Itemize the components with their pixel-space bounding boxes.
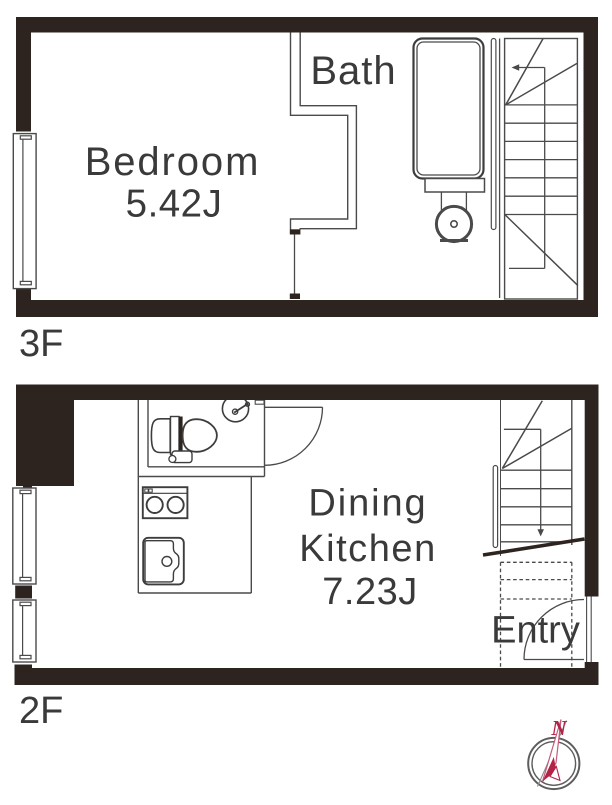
svg-text:2F: 2F xyxy=(19,690,63,732)
svg-text:Bedroom: Bedroom xyxy=(85,140,261,184)
svg-text:Dining: Dining xyxy=(308,482,427,524)
svg-text:7.23J: 7.23J xyxy=(322,571,417,613)
svg-text:Entry: Entry xyxy=(491,610,580,652)
svg-text:Kitchen: Kitchen xyxy=(299,528,437,570)
svg-text:5.42J: 5.42J xyxy=(126,183,223,226)
svg-text:Bath: Bath xyxy=(310,49,396,93)
svg-text:N: N xyxy=(550,716,567,740)
svg-text:3F: 3F xyxy=(19,323,63,365)
